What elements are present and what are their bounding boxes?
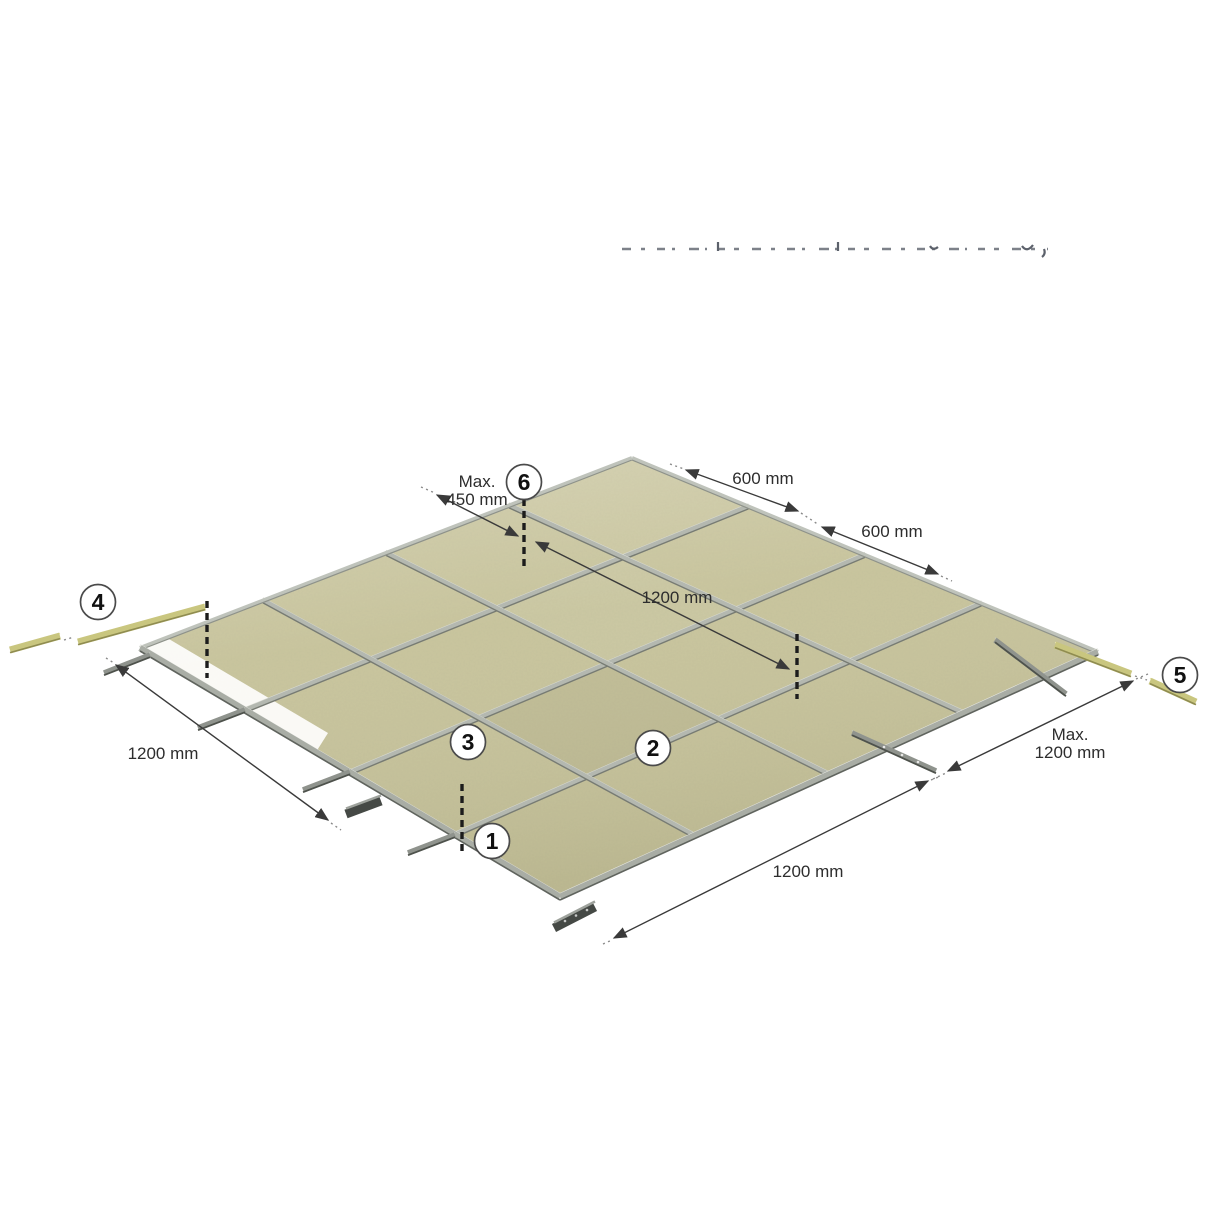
installation-diagram: Max. 450 mm 600 mm 600 mm 1200 mm 1200 m… bbox=[0, 0, 1214, 1214]
label-1200-bottom: 1200 mm bbox=[773, 862, 844, 881]
callout-4-label: 4 bbox=[92, 589, 105, 615]
label-600-first: 600 mm bbox=[732, 469, 793, 488]
callout-6-label: 6 bbox=[518, 469, 531, 495]
main-runner-stub bbox=[408, 833, 455, 856]
main-runner-stub bbox=[104, 653, 150, 676]
callout-1-label: 1 bbox=[486, 828, 499, 854]
main-runner-stub bbox=[303, 770, 350, 793]
label-max-450-line2: 450 mm bbox=[446, 490, 507, 509]
callout-4-badge: 4 bbox=[81, 585, 116, 620]
label-1200-diagonal: 1200 mm bbox=[642, 588, 713, 607]
label-max-450-line1: Max. bbox=[459, 472, 496, 491]
ceiling-grid-figure: Max. 450 mm 600 mm 600 mm 1200 mm 1200 m… bbox=[0, 0, 1214, 1214]
wall-angle-gap-dots-left bbox=[64, 637, 74, 640]
label-max-1200-line1: Max. bbox=[1052, 725, 1089, 744]
callout-2-badge: 2 bbox=[636, 731, 671, 766]
callout-6-badge: 6 bbox=[507, 465, 542, 500]
callout-2-label: 2 bbox=[647, 735, 660, 761]
loose-profile-piece bbox=[554, 902, 595, 929]
main-runner-stub bbox=[198, 708, 245, 731]
callout-5-label: 5 bbox=[1174, 662, 1187, 688]
label-max-1200-line2: 1200 mm bbox=[1035, 743, 1106, 762]
clipped-text-fragment bbox=[622, 242, 1048, 257]
callout-5-badge: 5 bbox=[1163, 658, 1198, 693]
label-1200-left: 1200 mm bbox=[128, 744, 199, 763]
wall-angle-left-detached bbox=[10, 633, 60, 652]
callout-3-label: 3 bbox=[462, 729, 475, 755]
callout-1-badge: 1 bbox=[475, 824, 510, 859]
label-600-second: 600 mm bbox=[861, 522, 922, 541]
panel-field bbox=[140, 458, 1098, 897]
loose-profile-piece bbox=[346, 796, 381, 815]
callout-3-badge: 3 bbox=[451, 725, 486, 760]
